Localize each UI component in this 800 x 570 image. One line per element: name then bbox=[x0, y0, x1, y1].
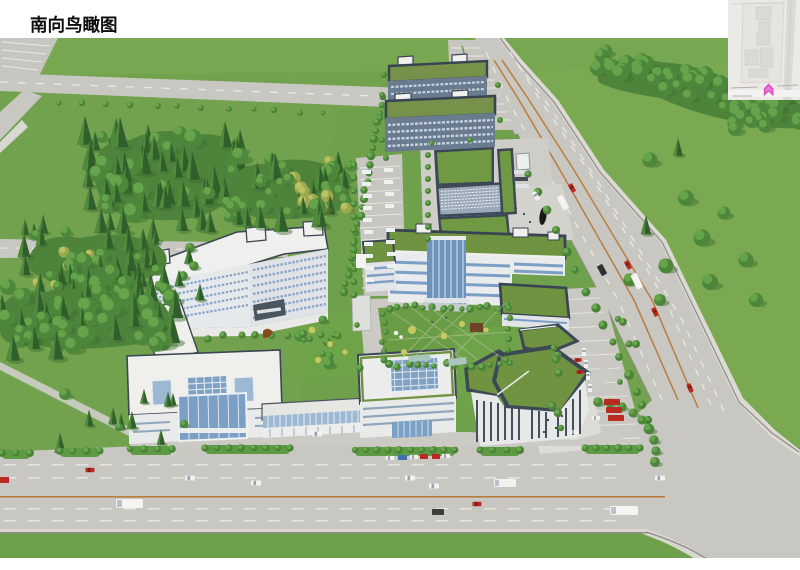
svg-text:南向鸟瞰图: 南向鸟瞰图 bbox=[30, 15, 118, 35]
